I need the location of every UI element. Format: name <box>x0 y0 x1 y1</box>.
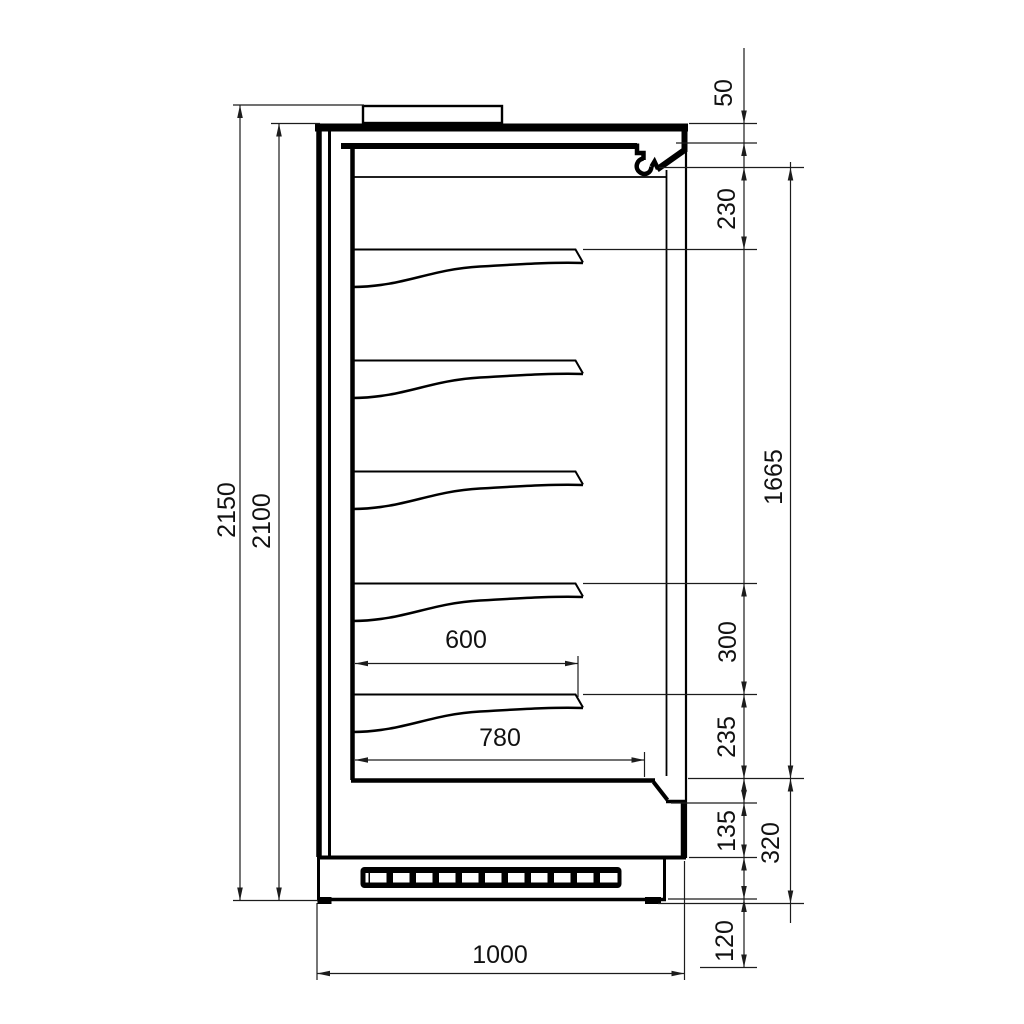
arrow-down <box>237 888 243 901</box>
deck-step-diagonal <box>654 782 668 800</box>
shelf-top <box>353 361 583 374</box>
dim-label-bottom-shelf-clearance: 235 <box>713 716 741 758</box>
grille-slot <box>393 873 410 883</box>
arrow-up <box>741 168 747 181</box>
arrow-down <box>741 766 747 779</box>
shelf-2 <box>353 361 584 399</box>
grille-slot <box>366 873 369 883</box>
arrow-left <box>355 661 368 667</box>
dimension-annotations: 2150 2100 50 230 1665 300 235 135 320 12… <box>213 48 804 980</box>
grille-slot <box>600 873 617 883</box>
ventilation-grille <box>362 868 621 887</box>
arrow-up <box>741 899 747 912</box>
dim-label-top-clearance: 230 <box>713 188 741 230</box>
top-cap-box <box>363 106 502 123</box>
technical-drawing: 2150 2100 50 230 1665 300 235 135 320 12… <box>0 0 1024 1024</box>
arrow-up <box>276 124 282 137</box>
shelf-bracket <box>353 374 584 398</box>
arrow-down <box>741 111 747 124</box>
canopy-hook-curl <box>637 159 652 174</box>
dim-label-shelf-depth: 600 <box>445 626 487 654</box>
shelf-3 <box>353 472 584 510</box>
dim-label-shelf-spacing: 300 <box>714 621 742 663</box>
arrow-up <box>741 584 747 597</box>
arrow-down <box>276 888 282 901</box>
arrow-up <box>788 168 794 181</box>
grille-slot <box>370 873 387 883</box>
arrow-down <box>741 682 747 695</box>
arrow-down <box>741 790 747 803</box>
shelf-bracket <box>353 708 584 732</box>
base-unit <box>317 858 686 905</box>
arrow-up <box>741 858 747 871</box>
arrow-up <box>741 803 747 816</box>
shelf-bracket <box>353 597 584 621</box>
arrow-down <box>788 891 794 904</box>
shelf-5 <box>353 695 584 733</box>
arrow-up <box>788 779 794 792</box>
shelf-4 <box>353 584 584 622</box>
arrow-right <box>632 757 645 763</box>
dim-label-front-panel-height: 135 <box>713 810 741 852</box>
grille-slot <box>485 873 502 883</box>
shelf-1 <box>353 250 584 288</box>
dim-label-overall-depth: 1000 <box>472 941 528 969</box>
arrow-up <box>237 105 243 118</box>
arrow-left <box>355 757 368 763</box>
dim-label-deck-depth: 780 <box>479 724 521 752</box>
grille-slot <box>462 873 479 883</box>
arrow-down <box>741 845 747 858</box>
shelf-top <box>353 695 583 708</box>
grille-slot <box>554 873 571 883</box>
dim-label-canopy-lip: 50 <box>710 79 738 107</box>
grille-slot <box>416 873 433 883</box>
arrow-right <box>672 971 685 977</box>
grille-slot <box>531 873 548 883</box>
grille-slot <box>439 873 456 883</box>
arrow-left <box>317 971 330 977</box>
arrow-up <box>741 143 747 156</box>
dim-label-overall-height: 2150 <box>213 482 241 538</box>
grille-slot <box>615 873 618 883</box>
shelf-top <box>353 250 583 263</box>
arrow-down <box>741 237 747 250</box>
arrow-right <box>565 661 578 667</box>
shelves-group <box>353 250 584 733</box>
dim-label-plinth-height: 120 <box>711 920 739 962</box>
drawing-canvas: 2150 2100 50 230 1665 300 235 135 320 12… <box>0 0 1024 1024</box>
dim-label-opening-height: 1665 <box>760 449 788 505</box>
arrow-up <box>741 695 747 708</box>
shelf-top <box>353 584 583 597</box>
dim-label-base-section-height: 320 <box>757 822 785 864</box>
canopy-slope <box>657 149 686 170</box>
grille-slot <box>508 873 525 883</box>
arrow-down <box>741 955 747 968</box>
dimension-labels: 2150 2100 50 230 1665 300 235 135 320 12… <box>213 79 788 969</box>
shelf-top <box>353 472 583 485</box>
arrow-down <box>741 886 747 899</box>
arrow-up <box>741 779 747 792</box>
grille-slot <box>577 873 594 883</box>
arrow-down <box>788 766 794 779</box>
shelf-bracket <box>353 485 584 509</box>
shelf-bracket <box>353 263 584 287</box>
dim-label-body-height: 2100 <box>248 493 276 549</box>
foot-left <box>318 897 332 904</box>
